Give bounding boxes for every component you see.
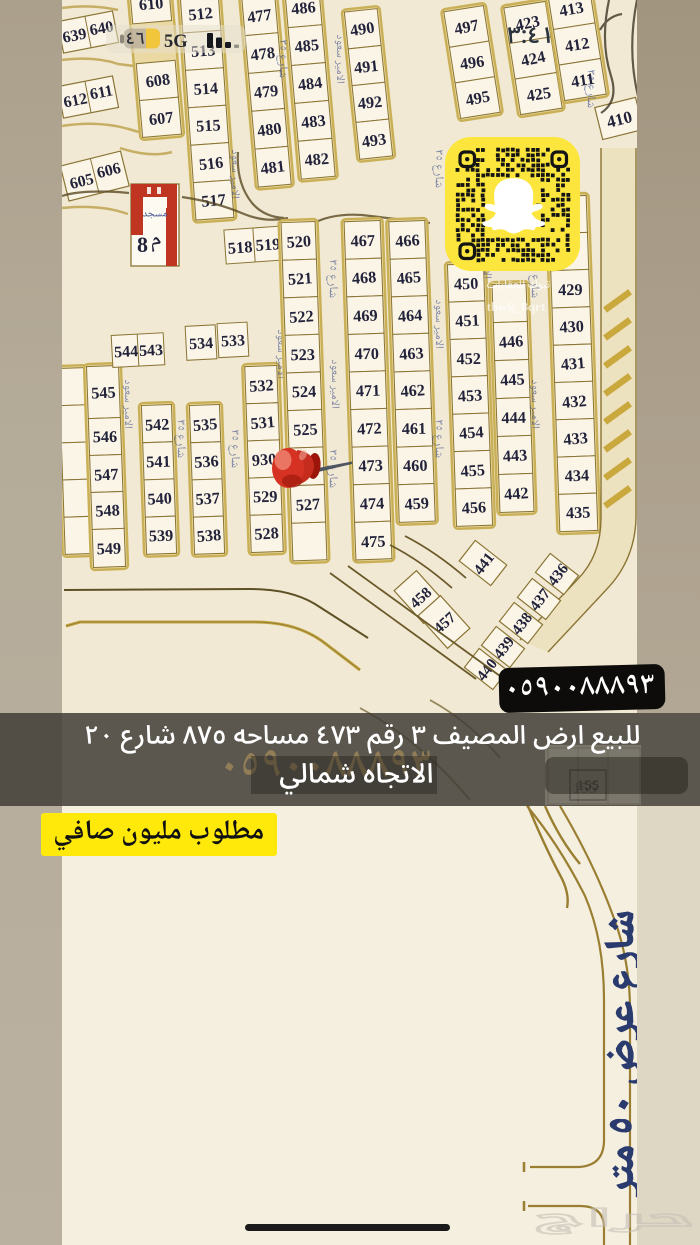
svg-text:465: 465 (396, 267, 422, 288)
svg-text:468: 468 (351, 267, 377, 288)
svg-text:538: 538 (196, 525, 222, 546)
svg-text:543: 543 (139, 342, 164, 360)
svg-text:442: 442 (504, 483, 530, 504)
svg-text:496: 496 (459, 51, 486, 73)
svg-text:461: 461 (402, 419, 427, 438)
svg-text:485: 485 (294, 35, 320, 56)
svg-text:431: 431 (560, 353, 586, 374)
svg-text:514: 514 (193, 78, 219, 99)
svg-text:470: 470 (354, 344, 379, 363)
svg-text:545: 545 (91, 382, 116, 402)
svg-text:479: 479 (253, 81, 279, 102)
svg-text:453: 453 (457, 385, 482, 405)
svg-text:467: 467 (350, 231, 375, 251)
svg-text:490: 490 (349, 18, 376, 41)
svg-text:484: 484 (297, 73, 324, 95)
svg-text:483: 483 (300, 111, 326, 132)
svg-text:5G: 5G (164, 32, 188, 52)
svg-text:464: 464 (397, 305, 423, 326)
svg-text:455: 455 (460, 460, 486, 481)
svg-text:520: 520 (286, 231, 312, 252)
svg-text:425: 425 (525, 83, 552, 106)
svg-text:459: 459 (404, 493, 430, 514)
svg-text:548: 548 (95, 500, 120, 520)
svg-text:411: 411 (570, 69, 596, 91)
svg-text:463: 463 (399, 343, 425, 364)
svg-text:547: 547 (94, 464, 119, 484)
svg-text:492: 492 (357, 92, 383, 113)
svg-text:445: 445 (500, 369, 525, 389)
svg-text:527: 527 (295, 494, 321, 515)
svg-text:542: 542 (144, 414, 169, 434)
svg-text:533: 533 (221, 332, 246, 350)
svg-text:433: 433 (563, 428, 589, 449)
svg-text:480: 480 (256, 118, 283, 140)
svg-text:452: 452 (456, 349, 481, 368)
svg-text:515: 515 (196, 115, 221, 135)
svg-text:491: 491 (353, 56, 379, 77)
svg-text:531: 531 (250, 412, 276, 433)
svg-text:451: 451 (455, 310, 480, 330)
svg-text:525: 525 (293, 419, 318, 439)
svg-text:521: 521 (287, 268, 313, 289)
svg-text:469: 469 (353, 305, 378, 325)
svg-text:481: 481 (259, 156, 286, 178)
svg-text:446: 446 (498, 331, 524, 352)
svg-text:541: 541 (146, 452, 171, 472)
svg-text:607: 607 (148, 107, 175, 129)
svg-text:523: 523 (290, 345, 315, 364)
svg-text:536: 536 (194, 451, 220, 472)
svg-text:443: 443 (502, 445, 527, 465)
svg-text:546: 546 (93, 427, 118, 446)
svg-text:524: 524 (291, 382, 316, 402)
svg-text:tbwk_8qrt: tbwk_8qrt (487, 299, 546, 314)
svg-text:432: 432 (561, 391, 587, 412)
svg-text:454: 454 (458, 422, 484, 443)
svg-text:472: 472 (357, 418, 382, 438)
svg-text:532: 532 (249, 375, 275, 396)
svg-text:478: 478 (249, 43, 276, 65)
svg-text:539: 539 (148, 526, 173, 546)
svg-text:528: 528 (254, 523, 280, 544)
svg-text:540: 540 (147, 488, 172, 508)
svg-text:471: 471 (355, 381, 380, 401)
svg-text:456: 456 (461, 497, 486, 517)
svg-text:429: 429 (558, 280, 583, 299)
svg-text:430: 430 (559, 316, 584, 336)
svg-text:549: 549 (96, 539, 121, 559)
svg-text:537: 537 (195, 488, 221, 509)
svg-text:608: 608 (144, 69, 171, 91)
svg-text:462: 462 (400, 380, 426, 401)
svg-text:516: 516 (198, 152, 225, 174)
svg-text:477: 477 (246, 5, 273, 27)
svg-text:473: 473 (358, 456, 383, 476)
svg-text:482: 482 (304, 149, 330, 170)
svg-text:610: 610 (138, 0, 164, 14)
svg-text:529: 529 (253, 487, 278, 507)
svg-text:474: 474 (359, 494, 384, 514)
svg-text:8: 8 (137, 232, 148, 257)
svg-text:466: 466 (395, 230, 421, 251)
svg-text:522: 522 (289, 306, 315, 327)
svg-text:412: 412 (564, 33, 591, 56)
svg-text:444: 444 (501, 408, 526, 427)
svg-text:544: 544 (114, 343, 139, 361)
svg-text:519: 519 (255, 234, 281, 255)
svg-text:475: 475 (361, 531, 386, 551)
svg-text:460: 460 (403, 456, 428, 475)
svg-text:518: 518 (227, 237, 253, 258)
svg-text:434: 434 (564, 466, 589, 486)
svg-text:534: 534 (189, 335, 214, 353)
svg-text:493: 493 (361, 129, 388, 151)
svg-text:535: 535 (192, 414, 218, 435)
svg-text:486: 486 (290, 0, 316, 18)
svg-text:512: 512 (187, 3, 213, 24)
svg-text:435: 435 (566, 502, 591, 522)
